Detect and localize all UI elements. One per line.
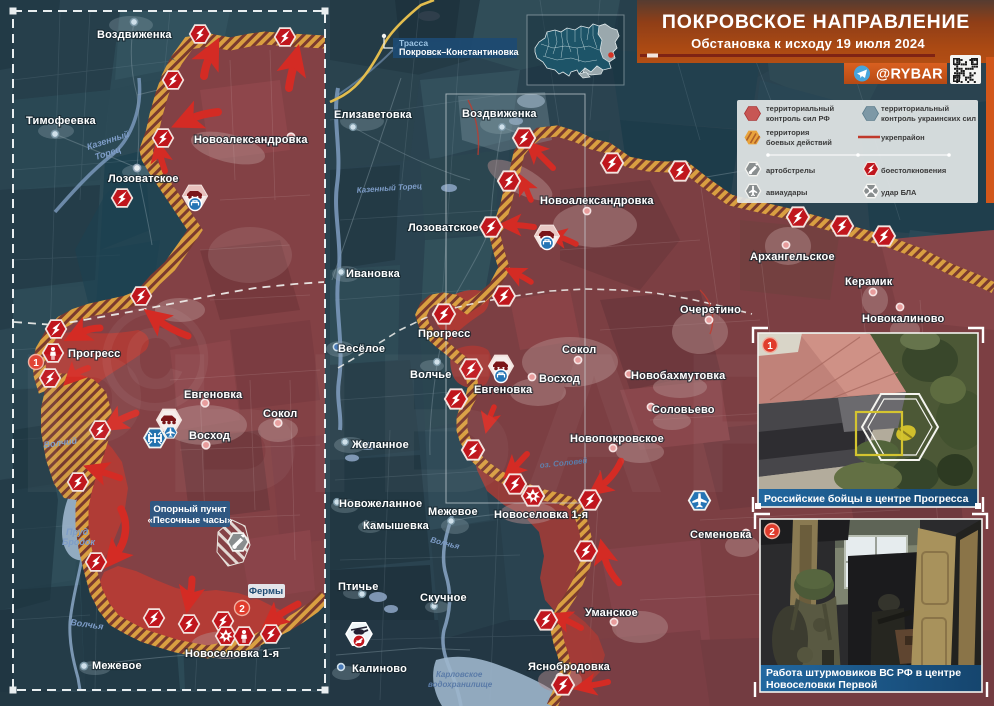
svg-text:2: 2 bbox=[769, 527, 775, 538]
svg-text:Архангельское: Архангельское bbox=[750, 251, 835, 263]
svg-text:Яснобродовка: Яснобродовка bbox=[528, 661, 611, 673]
svg-text:Лозоватское: Лозоватское bbox=[408, 222, 479, 234]
svg-text:Карловское: Карловское bbox=[436, 670, 483, 679]
svg-text:Скучное: Скучное bbox=[420, 592, 467, 604]
svg-text:Работа штурмовиков ВС РФ в цен: Работа штурмовиков ВС РФ в центре bbox=[766, 667, 961, 679]
svg-text:Новоселовка 1-я: Новоселовка 1-я bbox=[185, 648, 279, 660]
svg-text:боевых действий: боевых действий bbox=[766, 138, 832, 147]
svg-text:ПОКРОВСКОЕ НАПРАВЛЕНИЕ: ПОКРОВСКОЕ НАПРАВЛЕНИЕ bbox=[662, 11, 970, 33]
svg-text:Уманское: Уманское bbox=[585, 607, 638, 619]
svg-text:контроль украинских сил: контроль украинских сил bbox=[881, 114, 976, 123]
svg-text:авиаудары: авиаудары bbox=[766, 188, 807, 197]
svg-text:территория: территория bbox=[766, 128, 809, 137]
svg-text:Калиново: Калиново bbox=[352, 663, 407, 675]
svg-text:Покровск–Константиновка: Покровск–Константиновка bbox=[399, 47, 519, 57]
svg-text:Ивановка: Ивановка bbox=[346, 268, 401, 280]
svg-text:Обстановка к исходу 19 июля 20: Обстановка к исходу 19 июля 2024 bbox=[691, 36, 925, 51]
svg-text:Керамик: Керамик bbox=[845, 276, 893, 288]
svg-text:Воздвиженка: Воздвиженка bbox=[462, 108, 537, 120]
svg-text:удар БЛА: удар БЛА bbox=[881, 188, 917, 197]
svg-text:Лозоватское: Лозоватское bbox=[108, 173, 179, 185]
svg-text:водохранилище: водохранилище bbox=[428, 680, 493, 689]
svg-text:Птичье: Птичье bbox=[338, 581, 379, 593]
svg-text:Тимофеевка: Тимофеевка bbox=[26, 115, 97, 127]
svg-text:Новоалександровка: Новоалександровка bbox=[194, 134, 308, 146]
svg-text:1: 1 bbox=[767, 341, 773, 352]
svg-text:боестолкновения: боестолкновения bbox=[881, 166, 946, 175]
svg-text:Новоселовки Первой: Новоселовки Первой bbox=[766, 679, 877, 691]
svg-text:2: 2 bbox=[239, 604, 245, 615]
svg-text:территориальный: территориальный bbox=[766, 104, 834, 113]
svg-text:Новоалександровка: Новоалександровка bbox=[540, 195, 654, 207]
svg-text:Межевое: Межевое bbox=[92, 660, 142, 672]
svg-text:Фермы: Фермы bbox=[249, 586, 283, 597]
svg-text:@RYBAR: @RYBAR bbox=[876, 67, 943, 83]
svg-text:Елизаветовка: Елизаветовка bbox=[334, 109, 413, 121]
svg-text:Российские бойцы в центре Прог: Российские бойцы в центре Прогресса bbox=[764, 493, 969, 505]
svg-text:территориальный: территориальный bbox=[881, 104, 949, 113]
svg-text:артобстрелы: артобстрелы bbox=[766, 166, 815, 175]
svg-text:Бродок: Бродок bbox=[62, 537, 95, 547]
svg-text:укрепрайон: укрепрайон bbox=[881, 133, 925, 142]
svg-text:контроль сил РФ: контроль сил РФ bbox=[766, 114, 830, 123]
svg-text:Воздвиженка: Воздвиженка bbox=[97, 29, 172, 41]
